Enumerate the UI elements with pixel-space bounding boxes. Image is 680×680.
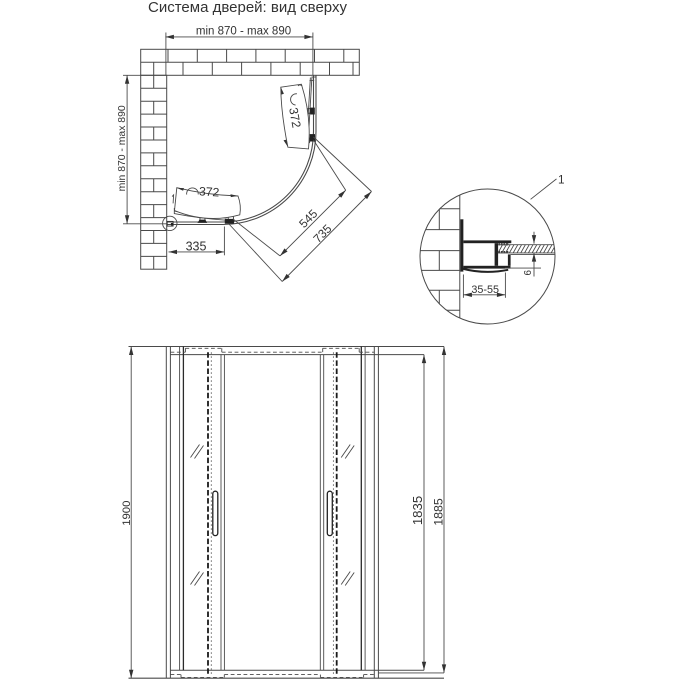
svg-text:1885: 1885 bbox=[432, 498, 446, 526]
svg-text:6: 6 bbox=[523, 270, 534, 276]
svg-text:min 870 - max 890: min 870 - max 890 bbox=[117, 105, 128, 191]
svg-text:min 870 - max 890: min 870 - max 890 bbox=[196, 25, 291, 37]
svg-text:1835: 1835 bbox=[410, 496, 425, 525]
svg-text:Система дверей: вид сверху: Система дверей: вид сверху bbox=[148, 0, 347, 16]
svg-text:335: 335 bbox=[186, 239, 207, 253]
svg-text:35-55: 35-55 bbox=[471, 284, 499, 296]
svg-text:1900: 1900 bbox=[121, 501, 133, 526]
svg-text:372: 372 bbox=[199, 184, 220, 199]
svg-text:1: 1 bbox=[558, 172, 565, 186]
